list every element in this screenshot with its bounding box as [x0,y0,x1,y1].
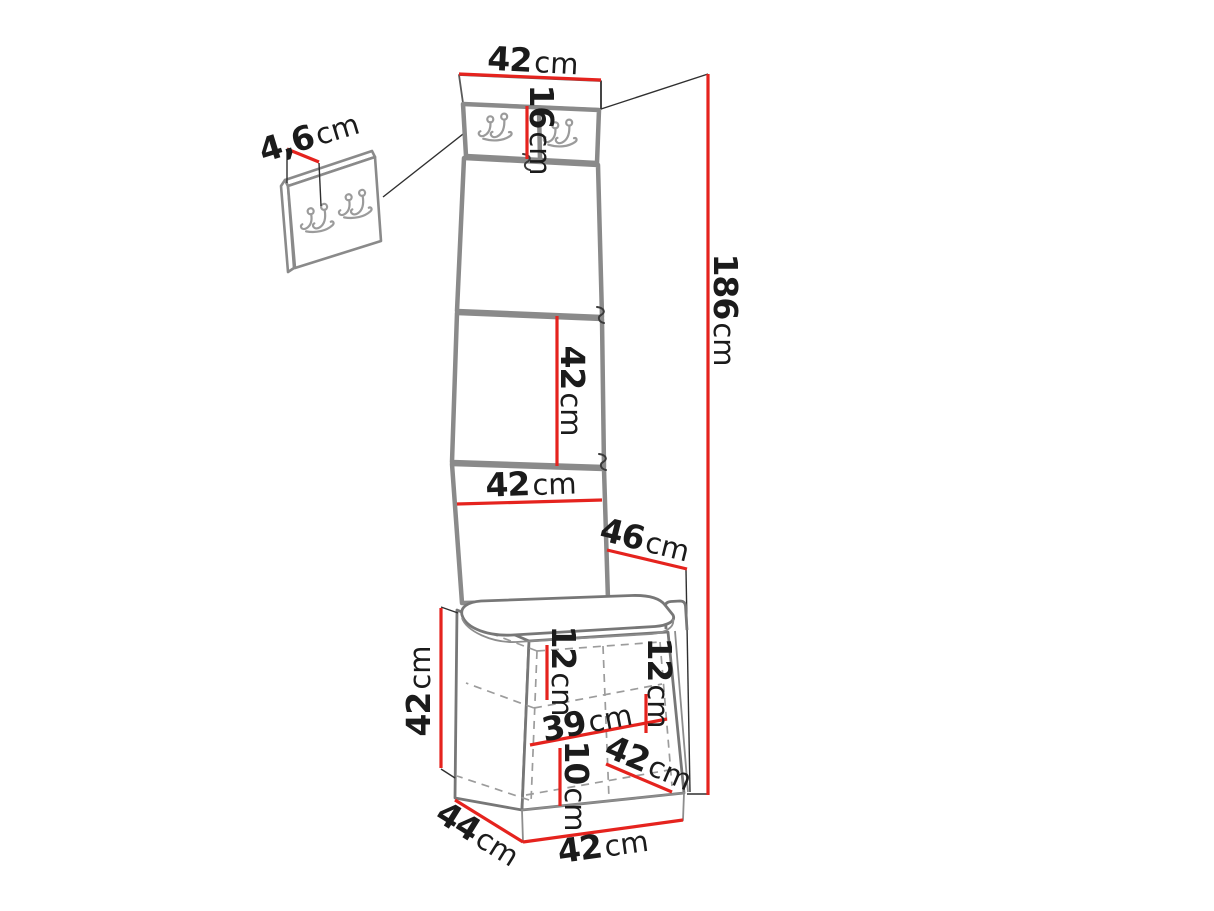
dim-unit: cm [311,107,363,152]
dim-unit: cm [533,45,579,81]
dim-unit: cm [403,645,437,689]
dim-unit: cm [707,322,741,366]
dim-value: 10 [557,740,596,784]
dim-value: 186 [706,253,745,319]
dim-value: 12 [640,637,679,681]
dim-total-height-label: 186cm [706,253,745,366]
dim-value: 42 [553,345,592,389]
dim-unit: cm [554,392,588,436]
detail-pointer-line [383,127,472,197]
dim-unit: cm [642,525,693,569]
dim-value: 42 [486,39,532,80]
dim-unit: cm [641,684,675,728]
dim-value: 42 [555,826,604,871]
diagram-canvas: 42cm 16cm 4,6cm 186cm 42cm 42cm 46cm 42c… [0,0,1214,911]
dim-top-width-label: 42cm [486,39,579,83]
dim-unit: cm [602,824,651,864]
dimension-diagram: 42cm 16cm 4,6cm 186cm 42cm 42cm 46cm 42c… [0,0,1214,911]
dim-value: 42 [399,693,438,737]
dim-cabinet-height-label: 42cm [399,645,438,736]
seat-plane-right-edge [686,570,690,792]
wall-hook-panel [281,150,381,272]
height-projection-line-top [601,74,708,109]
dim-value: 42 [485,464,530,505]
dim-value: 16 [522,84,561,128]
cabinet-height-tick-bottom [441,769,455,778]
panel-segment-lower [452,464,608,603]
panel-segment-upper [457,158,602,317]
dim-value: 12 [544,625,583,669]
dim-unit: cm [532,466,577,502]
dim-unit: cm [558,787,592,831]
panel-segment-middle [452,313,604,467]
dim-unit: cm [523,131,557,175]
cabinet-height-tick-top [441,607,458,613]
dim-value: 4,6 [254,117,318,171]
